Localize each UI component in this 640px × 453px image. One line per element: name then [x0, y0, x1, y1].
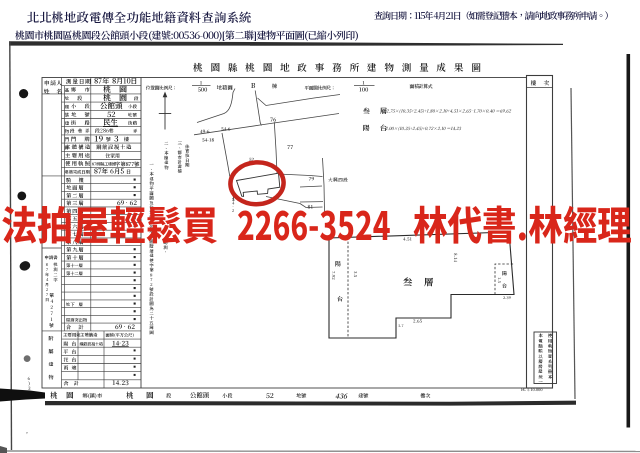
svg-text:園: 園 [66, 390, 74, 401]
svg-text:北北桃地政電傳全功能地籍資料查詢系統: 北北桃地政電傳全功能地籍資料查詢系統 [27, 8, 252, 26]
svg-text:台: 台 [72, 348, 77, 355]
svg-text:台: 台 [72, 340, 77, 347]
svg-text:林代書.林經理: 林代書.林經理 [413, 194, 632, 252]
svg-text:位置圖比例尺：: 位置圖比例尺： [145, 85, 177, 92]
svg-text:住家用: 住家用 [105, 152, 121, 159]
svg-text:主要用途: 主要用途 [63, 333, 81, 339]
svg-text:屋頂突出物: 屋頂突出物 [65, 317, 88, 323]
svg-text:樓: 樓 [123, 136, 129, 143]
svg-text:測量日期: 測量日期 [65, 77, 91, 86]
svg-text:街: 街 [70, 120, 77, 127]
svg-text:52: 52 [266, 390, 274, 400]
svg-text:段: 段 [69, 129, 75, 135]
svg-text:BC 5 10.000: BC 5 10.000 [520, 388, 543, 393]
svg-text:附屬建物: 附屬建物 [47, 335, 54, 381]
svg-text:街路: 街路 [127, 121, 137, 127]
svg-text:77: 77 [287, 143, 293, 151]
svg-text:本電腦賬以層房屋統一: 本電腦賬以層房屋統一 [537, 333, 543, 385]
svg-text:叁: 叁 [402, 275, 413, 289]
svg-text:段: 段 [77, 95, 83, 102]
svg-text:係實施日期: 係實施日期 [184, 144, 190, 168]
svg-text:2.65: 2.65 [413, 319, 422, 325]
svg-text:園: 園 [146, 390, 154, 401]
svg-text:次: 次 [544, 79, 550, 87]
svg-text:69 · 62: 69 · 62 [115, 322, 135, 331]
svg-text:樓: 樓 [531, 79, 537, 87]
svg-text:雨: 雨 [64, 365, 69, 372]
svg-text:平面圖比例尺：: 平面圖比例尺： [305, 85, 336, 92]
svg-text:79: 79 [309, 176, 315, 183]
svg-text:號: 號 [85, 111, 90, 118]
svg-text:桃測二字: 桃測二字 [52, 262, 58, 284]
svg-text:二、本棟建物: 二、本棟建物 [164, 141, 169, 171]
svg-text:第4271號: 第4271號 [49, 292, 54, 329]
svg-text:民生: 民生 [103, 117, 118, 128]
svg-text:樓次: 樓次 [420, 393, 431, 400]
svg-text:桃園縣桃園地政事務所建物測量成果圖: 桃園縣桃園地政事務所建物測量成果圖 [193, 60, 489, 74]
svg-text:合: 合 [64, 380, 69, 387]
svg-text:4.51: 4.51 [403, 237, 412, 243]
svg-text:1.7: 1.7 [398, 324, 404, 329]
svg-text:計: 計 [73, 380, 79, 387]
svg-text:鋼筋混凝土造: 鋼筋混凝土造 [79, 341, 103, 347]
svg-text:地面層: 地面層 [66, 185, 85, 192]
svg-text:14.23: 14.23 [112, 378, 129, 387]
svg-text:主要用途: 主要用途 [65, 151, 91, 159]
svg-text:台: 台 [337, 294, 343, 303]
svg-text:8.14: 8.14 [452, 253, 458, 262]
svg-text:法拍屋輕鬆買: 法拍屋輕鬆買 [1, 194, 218, 252]
svg-text:地號: 地號 [296, 393, 306, 400]
svg-text:段: 段 [166, 393, 172, 400]
svg-text:6)3: 6)3 [28, 376, 31, 392]
svg-text:查詢日期：115年 4月21日（如需登記謄本，請向地政事務所: 查詢日期：115年 4月21日（如需登記謄本，請向地政事務所申請。） [374, 8, 612, 22]
svg-text:平: 平 [64, 348, 69, 355]
svg-text:段: 段 [85, 103, 91, 110]
svg-text:桃: 桃 [126, 390, 134, 401]
svg-text:第十二層: 第十二層 [66, 271, 83, 277]
svg-text:主體構造: 主體構造 [80, 333, 98, 339]
svg-text:地下 層: 地下 層 [65, 302, 83, 308]
svg-text:市: 市 [85, 87, 91, 94]
svg-text:地籍圖: 地籍圖 [217, 84, 234, 92]
svg-text:54-6: 54-6 [221, 127, 231, 133]
svg-text:2.75×(10.35+2.45)+1.80×2.10+4.: 2.75×(10.35+2.45)+1.80×2.10+4.51×2.65−1.… [386, 109, 511, 115]
svg-text:B: B [251, 80, 256, 90]
svg-text:門: 門 [71, 136, 76, 143]
svg-text:建號: 建號 [358, 393, 368, 400]
svg-text:陽: 陽 [335, 259, 341, 268]
svg-text:第十層: 第十層 [66, 254, 85, 261]
svg-text:牌: 牌 [84, 136, 91, 143]
svg-text:面積計算式: 面積計算式 [409, 83, 433, 90]
svg-text:桃: 桃 [50, 390, 58, 401]
svg-text:54-18: 54-18 [202, 138, 215, 144]
svg-text:棟: 棟 [272, 83, 278, 90]
svg-text:‚: ‚ [26, 426, 28, 436]
svg-text:陽: 陽 [64, 340, 69, 347]
svg-text:第十一層: 第十一層 [66, 263, 83, 269]
svg-text:合 計: 合 計 [66, 324, 85, 331]
svg-text:1.00×(10.35+2.45)+0.72×2.10 ＝1: 1.00×(10.35+2.45)+0.72×2.10 ＝14.23 [386, 126, 462, 132]
svg-text:三、都市計畫樁: 三、都市計畫樁 [177, 141, 183, 175]
svg-text:小: 小 [71, 103, 76, 110]
svg-text:公館頭: 公館頭 [189, 391, 210, 400]
svg-text:叁 層: 叁 層 [363, 107, 389, 117]
svg-text:地號: 地號 [127, 112, 137, 118]
svg-text:76: 76 [270, 116, 276, 124]
svg-text:100: 100 [359, 85, 369, 93]
svg-text:2.39: 2.39 [503, 296, 511, 301]
svg-text:騎 樓: 騎 樓 [65, 177, 85, 184]
svg-text:鄉(鎮)市: 鄉(鎮)市 [83, 393, 103, 400]
svg-text:弄: 弄 [85, 129, 90, 135]
svg-text:2266-3524: 2266-3524 [237, 195, 391, 253]
svg-text:段: 段 [133, 96, 139, 102]
svg-text:49-6: 49-6 [200, 129, 210, 135]
svg-text:使用執照: 使用執照 [65, 160, 91, 168]
svg-text:桃園市桃園區桃園段公館頭小段(建號:00536-000)[第: 桃園市桃園區桃園段公館頭小段(建號:00536-000)[第二聯]建物平面圖(已… [15, 27, 358, 42]
svg-text:申請書: 申請書 [45, 255, 59, 261]
svg-text:鄉: 鄉 [71, 87, 77, 94]
svg-text:申請人: 申請人 [44, 79, 63, 87]
svg-text:號: 號 [106, 136, 111, 143]
svg-text:1.5: 1.5 [496, 277, 502, 284]
svg-text:6月5: 6月5 [110, 167, 124, 176]
svg-text:436: 436 [335, 392, 348, 402]
svg-text:使用執照壹系列冊本: 使用執照壹系列冊本 [547, 333, 553, 380]
svg-text:路: 路 [85, 120, 91, 127]
svg-text:地: 地 [71, 111, 77, 118]
svg-text:54-2: 54-2 [232, 198, 235, 214]
svg-text:3.5: 3.5 [352, 271, 358, 278]
svg-text:500: 500 [198, 85, 208, 93]
svg-text:87年: 87年 [94, 167, 108, 176]
svg-text:花: 花 [64, 357, 69, 364]
svg-text:日: 日 [126, 169, 131, 176]
svg-text:建築完成日期: 建築完成日期 [65, 170, 91, 176]
svg-text:鋼筋混凝土造: 鋼筋混凝土造 [96, 143, 132, 151]
svg-text:7.92: 7.92 [330, 271, 336, 280]
svg-text:小段: 小段 [222, 393, 233, 400]
svg-text:層: 層 [424, 275, 434, 289]
svg-text:弄: 弄 [133, 129, 138, 135]
svg-text:台: 台 [72, 357, 77, 364]
svg-text:姓 名: 姓 名 [43, 88, 63, 96]
svg-text:大興四段: 大興四段 [328, 177, 348, 184]
svg-text:巷: 巷 [78, 128, 83, 135]
svg-text:遮: 遮 [72, 365, 77, 372]
svg-text:14·23: 14·23 [112, 338, 129, 347]
svg-text:小段: 小段 [128, 104, 137, 110]
